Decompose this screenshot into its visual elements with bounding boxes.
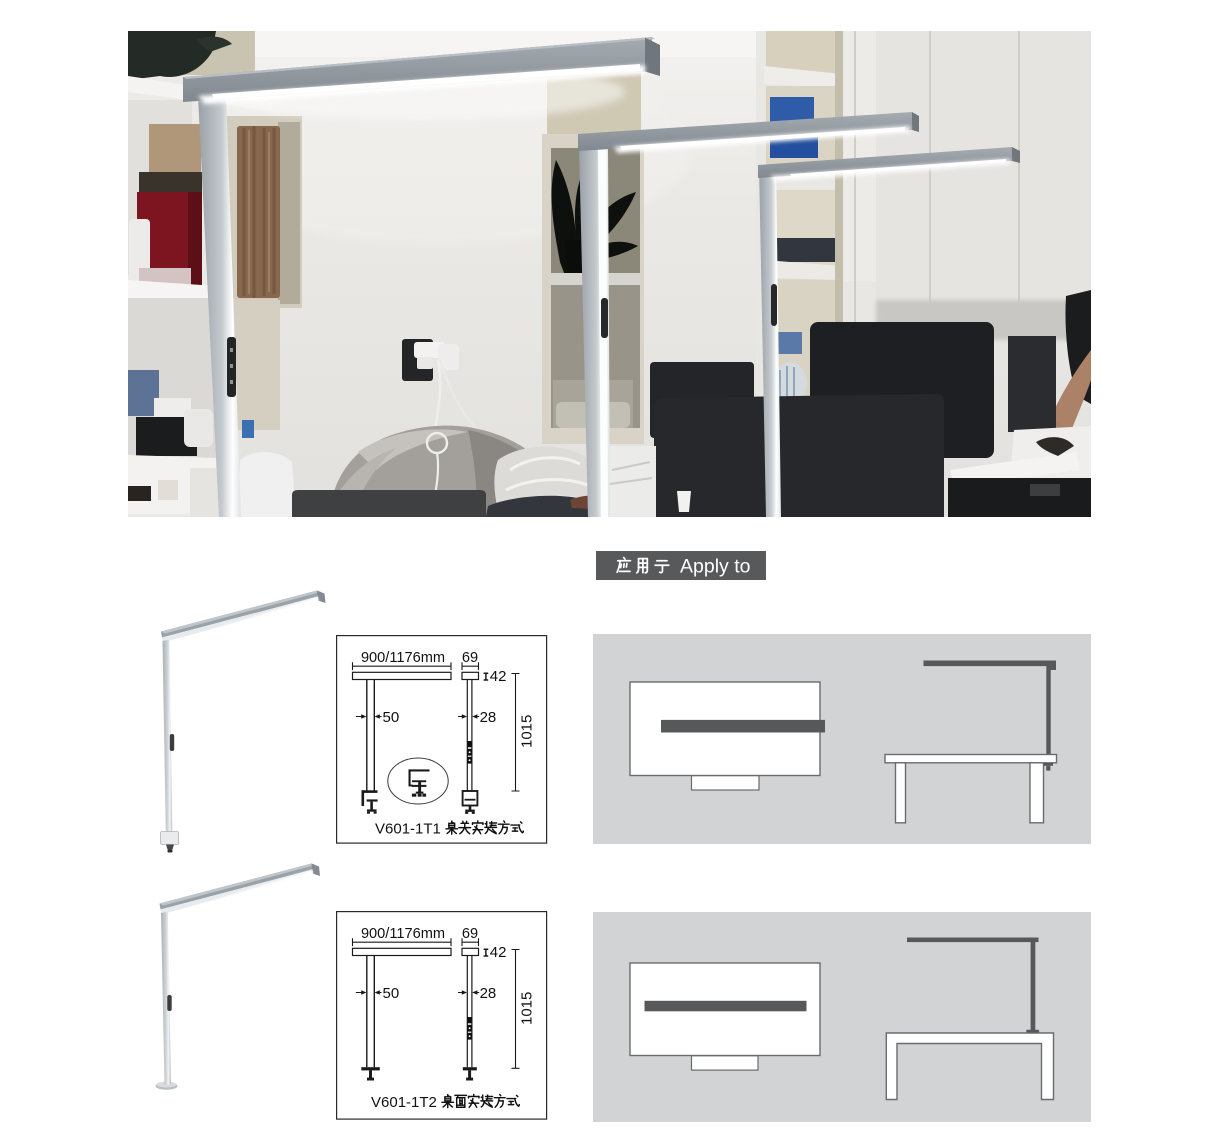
svg-text:42: 42 <box>490 944 507 961</box>
svg-text:42: 42 <box>490 668 507 685</box>
svg-text:28: 28 <box>480 709 497 726</box>
svg-text:1015: 1015 <box>519 715 536 748</box>
svg-text:1015: 1015 <box>519 992 536 1025</box>
svg-text:50: 50 <box>383 985 400 1002</box>
svg-text:V601-1T1: V601-1T1 <box>375 821 441 838</box>
svg-text:900/1176mm: 900/1176mm <box>361 650 445 666</box>
svg-text:69: 69 <box>462 926 478 942</box>
svg-text:28: 28 <box>480 985 497 1002</box>
svg-text:900/1176mm: 900/1176mm <box>361 926 445 942</box>
svg-text:Apply to: Apply to <box>680 556 751 578</box>
svg-text:V601-1T2: V601-1T2 <box>371 1094 437 1111</box>
svg-text:50: 50 <box>383 709 400 726</box>
svg-text:69: 69 <box>462 650 478 666</box>
